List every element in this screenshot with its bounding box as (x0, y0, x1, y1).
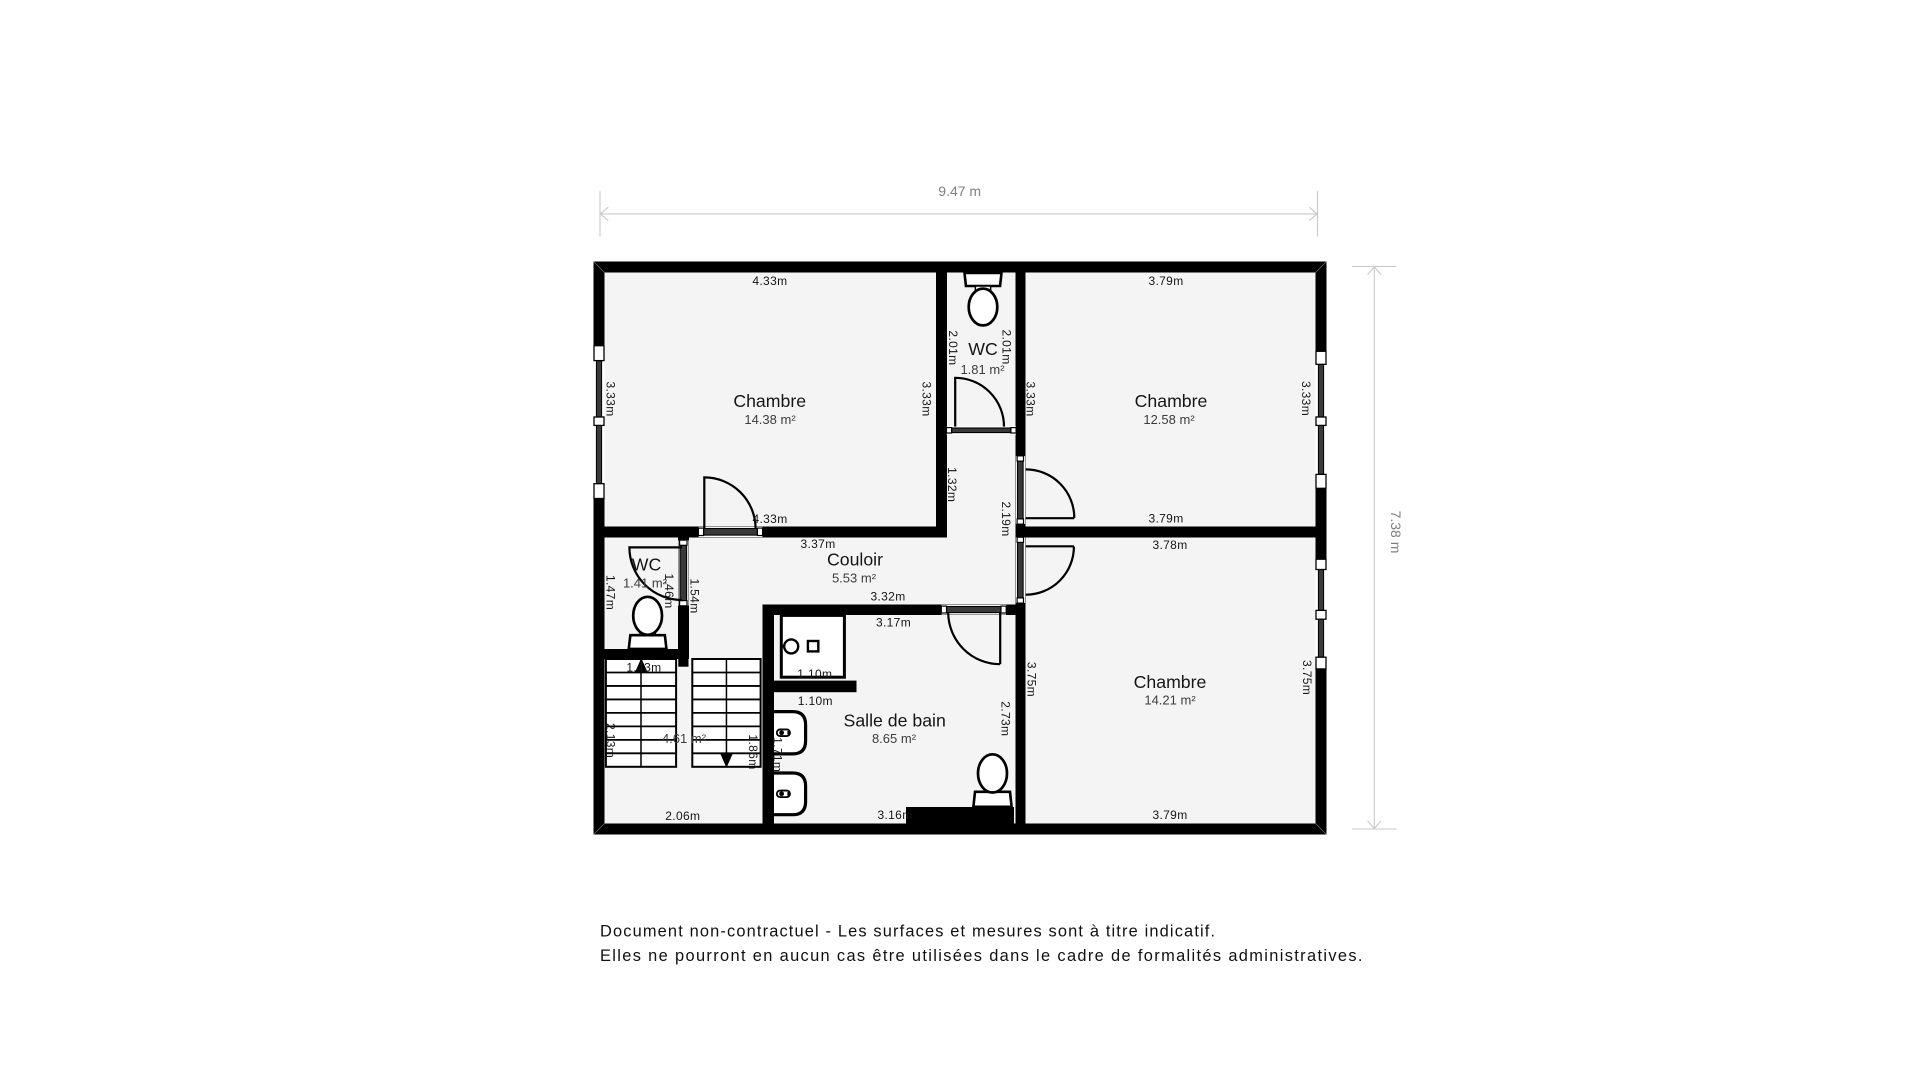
svg-text:3.79m: 3.79m (1152, 808, 1187, 822)
svg-text:3.78m: 3.78m (1152, 538, 1187, 552)
svg-text:1.32m: 1.32m (945, 467, 959, 502)
svg-text:1.81 m²: 1.81 m² (960, 362, 1005, 377)
svg-text:3.33m: 3.33m (920, 381, 934, 416)
svg-text:2.01m: 2.01m (999, 329, 1013, 364)
svg-text:3.33m: 3.33m (1024, 381, 1038, 416)
svg-text:Document non-contractuel - Les: Document non-contractuel - Les surfaces … (600, 923, 1216, 941)
svg-text:14.21 m²: 14.21 m² (1144, 693, 1196, 708)
svg-text:4.61 m²: 4.61 m² (662, 731, 707, 746)
svg-text:1.10m: 1.10m (797, 667, 832, 681)
svg-text:Chambre: Chambre (1135, 391, 1208, 411)
svg-text:3.17m: 3.17m (876, 616, 911, 630)
svg-text:4.33m: 4.33m (752, 512, 787, 526)
svg-text:3.75m: 3.75m (1300, 660, 1314, 695)
svg-text:1.47m: 1.47m (604, 575, 618, 610)
svg-text:Elles ne pourront en aucun cas: Elles ne pourront en aucun cas être util… (600, 947, 1364, 965)
svg-text:12.58 m²: 12.58 m² (1143, 412, 1195, 427)
svg-text:3.16m: 3.16m (877, 808, 912, 822)
svg-text:WC: WC (632, 555, 662, 575)
svg-text:3.79m: 3.79m (1148, 512, 1183, 526)
svg-text:Salle de bain: Salle de bain (844, 711, 946, 731)
svg-text:1.54m: 1.54m (688, 578, 702, 613)
svg-text:5.53 m²: 5.53 m² (832, 571, 877, 586)
svg-text:8.65 m²: 8.65 m² (872, 731, 917, 746)
svg-text:1.71m: 1.71m (771, 737, 785, 772)
svg-text:7.38 m: 7.38 m (1388, 511, 1404, 554)
svg-text:3.79m: 3.79m (1148, 274, 1183, 288)
svg-text:9.47 m: 9.47 m (938, 183, 981, 199)
svg-text:3.33m: 3.33m (1299, 381, 1313, 416)
svg-text:2.13m: 2.13m (603, 723, 617, 758)
svg-text:WC: WC (968, 339, 998, 359)
svg-text:1.43m: 1.43m (626, 661, 661, 675)
svg-text:14.38 m²: 14.38 m² (744, 412, 796, 427)
svg-text:1.41 m²: 1.41 m² (623, 576, 668, 591)
svg-text:2.06m: 2.06m (665, 809, 700, 823)
svg-text:Chambre: Chambre (1134, 672, 1207, 692)
svg-text:Couloir: Couloir (827, 550, 883, 570)
svg-text:Chambre: Chambre (733, 391, 806, 411)
svg-text:1.46m: 1.46m (662, 573, 676, 608)
svg-text:3.32m: 3.32m (870, 590, 905, 604)
svg-text:2.19m: 2.19m (999, 501, 1013, 536)
svg-text:3.75m: 3.75m (1025, 662, 1039, 697)
svg-text:1.10m: 1.10m (798, 694, 833, 708)
svg-text:3.37m: 3.37m (800, 537, 835, 551)
svg-text:3.33m: 3.33m (604, 381, 618, 416)
svg-text:4.33m: 4.33m (752, 274, 787, 288)
svg-text:2.01m: 2.01m (946, 330, 960, 365)
svg-text:2.73m: 2.73m (999, 701, 1013, 736)
svg-text:1.86m: 1.86m (746, 734, 760, 769)
